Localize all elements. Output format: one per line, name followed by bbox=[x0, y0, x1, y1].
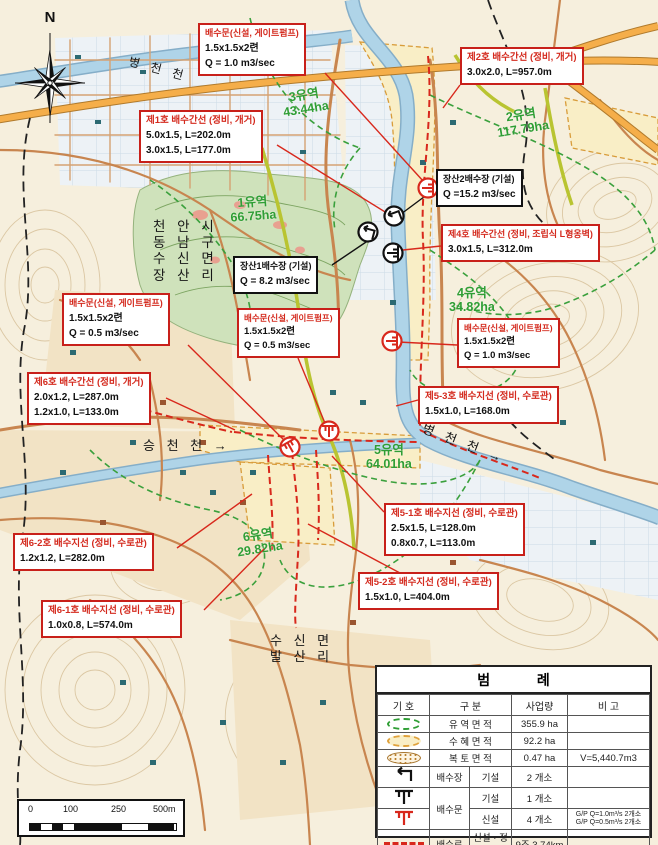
legend-header-note: 비 고 bbox=[568, 695, 650, 716]
scale-tick: 500m bbox=[153, 804, 176, 814]
river-label-seungcheon: 승 천 천 → bbox=[143, 438, 231, 454]
scale-tick: 250 bbox=[111, 804, 126, 814]
legend-row-watershed-area: 유 역 면 적 355.9 ha bbox=[378, 716, 650, 733]
callout-branch-6-1: 제6-1호 배수지선 (정비, 수로관) 1.0x0.8, L=574.0m bbox=[41, 600, 182, 638]
legend-row-gate-new: 신설 4 개소 G/P Q=1.0m³/s 2개소 G/P Q=0.5m³/s … bbox=[378, 809, 650, 830]
legend-row-fill-area: 복 토 면 적 0.47 ha V=5,440.7m3 bbox=[378, 750, 650, 767]
callout-gate-new-top: 배수문(신설, 게이트펌프) 1.5x1.5x2련 Q = 1.0 m3/sec bbox=[198, 23, 306, 76]
scale-bar-segments bbox=[29, 823, 177, 831]
scale-bar: 0 100 250 500m bbox=[17, 799, 185, 837]
north-label: N bbox=[12, 10, 88, 25]
callout-main-line-4: 제4호 배수간선 (정비, 조립식 L형옹벽) 3.0x1.5, L=312.0… bbox=[441, 224, 600, 262]
admin-area-label: 천 안 시 동 남 구 수 신 면 장 산 리 bbox=[153, 219, 218, 284]
callout-pump-station-2: 장산2배수장 (기설) Q =15.2 m3/sec bbox=[436, 169, 523, 207]
legend-row-benefit-area: 수 혜 면 적 92.2 ha bbox=[378, 733, 650, 750]
place-label-balsan: 수 신 면 발 산 리 bbox=[270, 633, 333, 664]
callout-branch-5-1: 제5-1호 배수지선 (정비, 수로관) 2.5x1.5, L=128.0m 0… bbox=[384, 503, 525, 556]
watershed-label-5: 5유역64.01ha bbox=[366, 443, 412, 472]
legend-row-pump-existing: 배수장 기설 2 개소 bbox=[378, 767, 650, 788]
watershed-label-1: 1유역66.75ha bbox=[229, 193, 277, 225]
scale-tick: 0 bbox=[28, 804, 33, 814]
legend-header-symbol: 기 호 bbox=[378, 695, 430, 716]
watershed-label-4: 4유역34.82ha bbox=[449, 286, 495, 315]
callout-branch-6-2: 제6-2호 배수지선 (정비, 수로관) 1.2x1.2, L=282.0m bbox=[13, 533, 154, 571]
callout-gate-new-right: 배수문(신설, 게이트펌프) 1.5x1.5x2련 Q = 1.0 m3/sec bbox=[457, 318, 560, 368]
gate-existing-icon bbox=[392, 788, 416, 805]
gate-new-icon bbox=[392, 809, 416, 826]
benefit-area-ellipse-icon bbox=[387, 735, 421, 747]
callout-gate-new-center: 배수문(신설, 게이트펌프) 1.5x1.5x2련 Q = 0.5 m3/sec bbox=[237, 308, 340, 358]
compass-rose-icon bbox=[12, 25, 88, 125]
legend-row-gate-existing: 배수문 기설 1 개소 bbox=[378, 788, 650, 809]
compass: N bbox=[12, 10, 88, 130]
callout-branch-5-2: 제5-2호 배수지선 (정비, 수로관) 1.5x1.0, L=404.0m bbox=[358, 572, 499, 610]
legend-table: 범 례 기 호 구 분 사업량 비 고 유 역 면 적 355.9 ha 수 혜… bbox=[375, 665, 652, 838]
legend-header-quantity: 사업량 bbox=[512, 695, 568, 716]
callout-gate-new-left: 배수문(신설, 게이트펌프) 1.5x1.5x2련 Q = 0.5 m3/sec bbox=[62, 293, 170, 346]
map-canvas: N 병 천 천 천 안 시 동 남 구 수 신 면 장 산 리 승 천 bbox=[0, 0, 658, 845]
callout-pump-station-1: 장산1배수장 (기설) Q = 8.2 m3/sec bbox=[233, 256, 318, 294]
scale-tick: 100 bbox=[63, 804, 78, 814]
callout-main-line-6: 제6호 배수간선 (정비, 개거) 2.0x1.2, L=287.0m 1.2x… bbox=[27, 372, 151, 425]
callout-main-line-1: 제1호 배수간선 (정비, 개거) 5.0x1.5, L=202.0m 3.0x… bbox=[139, 110, 263, 163]
legend-row-drain-route: 배수로 신설 · 정비 9조 3.74km bbox=[378, 830, 650, 845]
pump-station-existing-icon bbox=[392, 767, 416, 784]
legend-title: 범 례 bbox=[377, 667, 650, 694]
fill-area-ellipse-icon bbox=[387, 752, 421, 764]
callout-branch-5-3: 제5-3호 배수지선 (정비, 수로관) 1.5x1.0, L=168.0m bbox=[418, 386, 559, 424]
legend-header-category: 구 분 bbox=[430, 695, 512, 716]
watershed-area-ellipse-icon bbox=[387, 718, 421, 730]
callout-main-line-2: 제2호 배수간선 (정비, 개거) 3.0x2.0, L=957.0m bbox=[460, 47, 584, 85]
